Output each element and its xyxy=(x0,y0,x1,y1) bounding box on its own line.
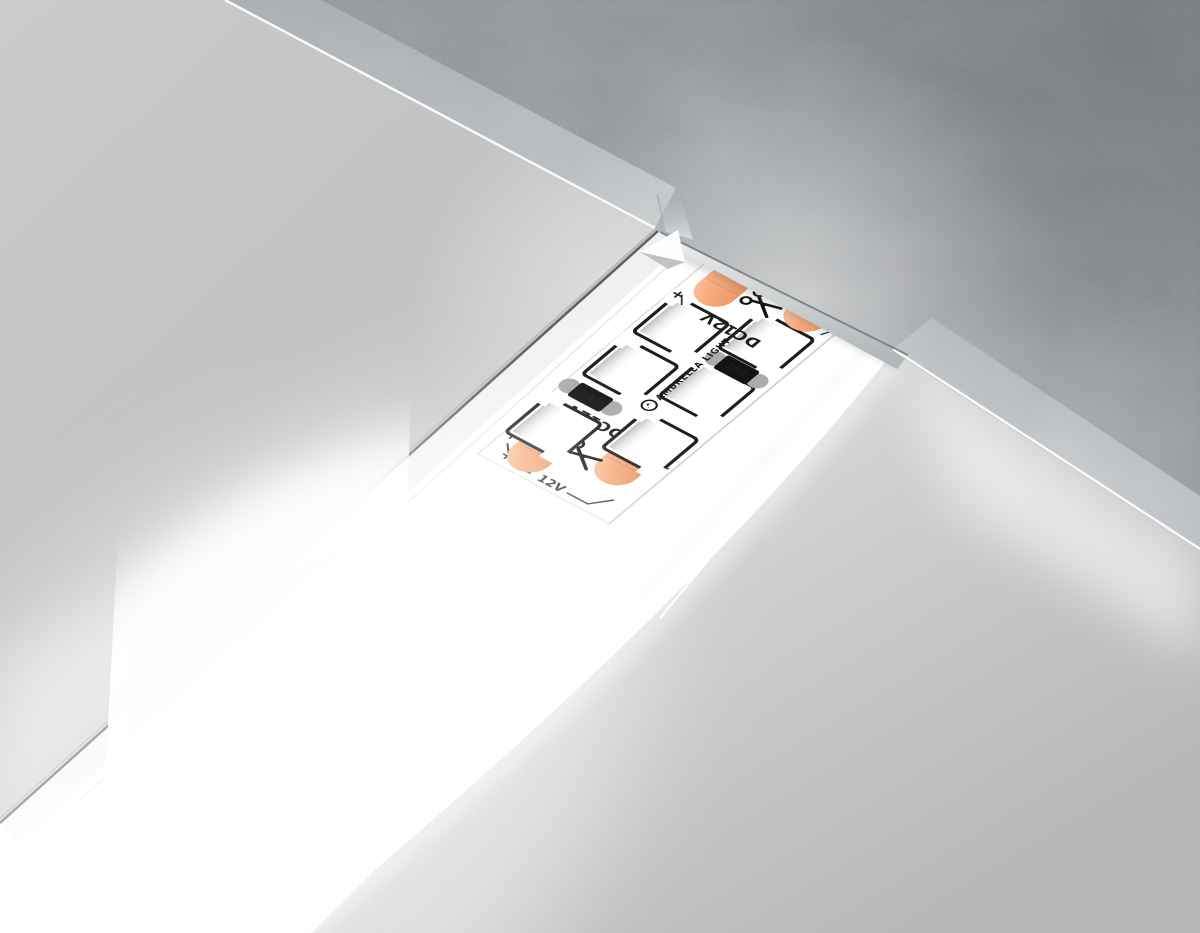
led-profile-product-render: + 12V + − DC12V xyxy=(0,0,1200,933)
